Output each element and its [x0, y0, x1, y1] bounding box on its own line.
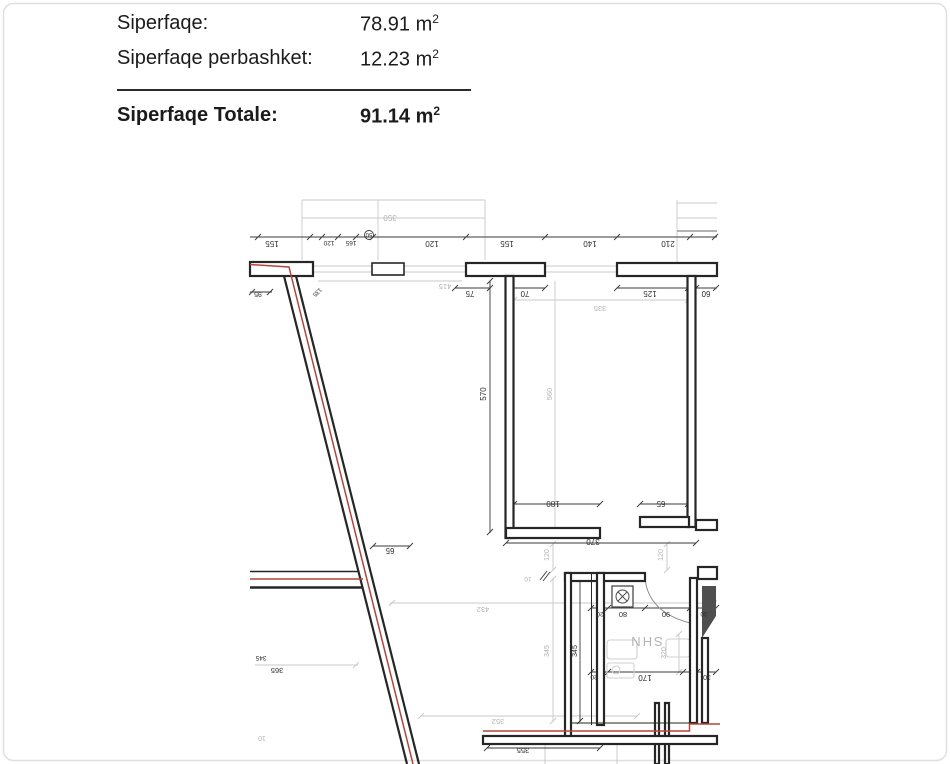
dimension-label: 432: [477, 605, 490, 614]
dimension-label: 210: [661, 239, 675, 248]
dimension-label: 355: [517, 746, 530, 755]
dimension-label: 415: [439, 282, 452, 291]
dimension-label: 120: [544, 549, 551, 561]
dimension-label: 60: [701, 289, 710, 298]
dimension-label: 370: [586, 537, 600, 546]
bathroom-fixtures: [607, 578, 716, 678]
wall-segment: [665, 703, 669, 764]
dimension-label: 10: [524, 575, 532, 582]
diagonal-wall: [284, 276, 407, 764]
dimension-label: 352: [492, 717, 505, 726]
dimension-label: 365: [271, 666, 284, 675]
dimension-label: 65: [385, 546, 394, 555]
interior-wall: [696, 520, 717, 530]
dimension-label: 345: [544, 645, 551, 657]
dimension-label: 180: [546, 499, 560, 508]
dimension-label: 560: [545, 388, 554, 401]
diagonal-wall: [296, 276, 419, 764]
dimension-label: 80: [619, 610, 627, 619]
wall-segment: [655, 703, 659, 764]
bathroom-wall: [690, 578, 697, 723]
dimension-label: 135: [311, 286, 323, 298]
dimension-label: 95: [254, 290, 262, 297]
dimension-label: 155: [500, 239, 514, 248]
interior-wall: [640, 517, 689, 527]
dimension-label: 140: [583, 239, 597, 248]
walls: [250, 262, 717, 764]
dimension-label: 125: [643, 289, 657, 298]
dimension-label: 20: [596, 610, 604, 617]
dimension-label: 165: [345, 239, 356, 246]
bathroom-wall: [565, 573, 571, 738]
exterior-wall: [617, 263, 717, 276]
dimension-label: 75: [465, 289, 474, 298]
dimension-label: 70: [520, 289, 529, 298]
break-symbol: [540, 571, 550, 581]
renovation-red-lines: [250, 265, 720, 764]
dimension-lines: [249, 231, 719, 752]
interior-wall: [506, 528, 600, 538]
dimension-label: 20: [590, 673, 598, 680]
dimension-label: 30: [703, 673, 711, 680]
dimension-label: 345: [255, 654, 266, 661]
interior-wall: [688, 276, 696, 527]
dimension-label: 570: [479, 387, 488, 401]
dimension-label: 90: [662, 610, 670, 619]
toilet-icon: [666, 639, 690, 657]
dimension-label: 120: [323, 239, 334, 246]
dimension-label: 155: [265, 239, 279, 248]
exterior-wall: [250, 262, 313, 276]
dimension-label: 65: [656, 499, 665, 508]
dimension-label: 345: [572, 645, 579, 657]
dimension-label: 30: [700, 610, 708, 617]
bathroom-wall: [698, 567, 717, 579]
bathroom-wall: [597, 573, 604, 725]
dimension-label: 50: [365, 231, 372, 237]
dimension-label: 335: [594, 304, 607, 313]
dimension-labels: 1551201655012015514021035095135415757012…: [254, 213, 711, 755]
dimension-label: 120: [425, 239, 439, 248]
exterior-wall: [466, 263, 545, 276]
page-border: [4, 4, 947, 761]
dimension-label: 120: [658, 549, 665, 561]
floor-plan-drawing: 1551201655012015514021035095135415757012…: [0, 0, 950, 764]
window: [372, 263, 404, 275]
dimension-label: 320: [661, 647, 668, 659]
dimension-label: 350: [383, 213, 397, 222]
interior-wall: [506, 276, 514, 538]
dimension-label: 10: [258, 734, 266, 741]
exterior-wall: [483, 736, 717, 744]
room-label-shn: SHN: [629, 634, 662, 649]
dimension-label: 170: [638, 673, 652, 682]
